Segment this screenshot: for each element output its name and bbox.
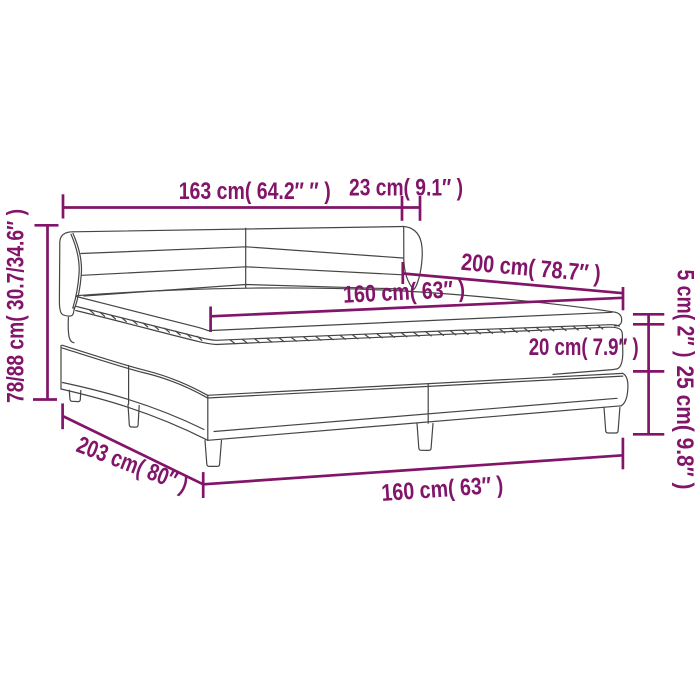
svg-text:5 cm( 2″ ): 5 cm( 2″ ): [672, 270, 699, 358]
svg-text:78/88 cm( 30.7/34.6″ ): 78/88 cm( 30.7/34.6″ ): [3, 209, 30, 403]
svg-text:163 cm( 64.2″ ″ ): 163 cm( 64.2″ ″ ): [179, 178, 331, 205]
svg-text:20 cm( 7.9″ ): 20 cm( 7.9″ ): [529, 334, 639, 361]
svg-text:25 cm( 9.8″ ): 25 cm( 9.8″ ): [671, 366, 698, 490]
svg-text:23 cm( 9.1″ ): 23 cm( 9.1″ ): [349, 175, 463, 202]
